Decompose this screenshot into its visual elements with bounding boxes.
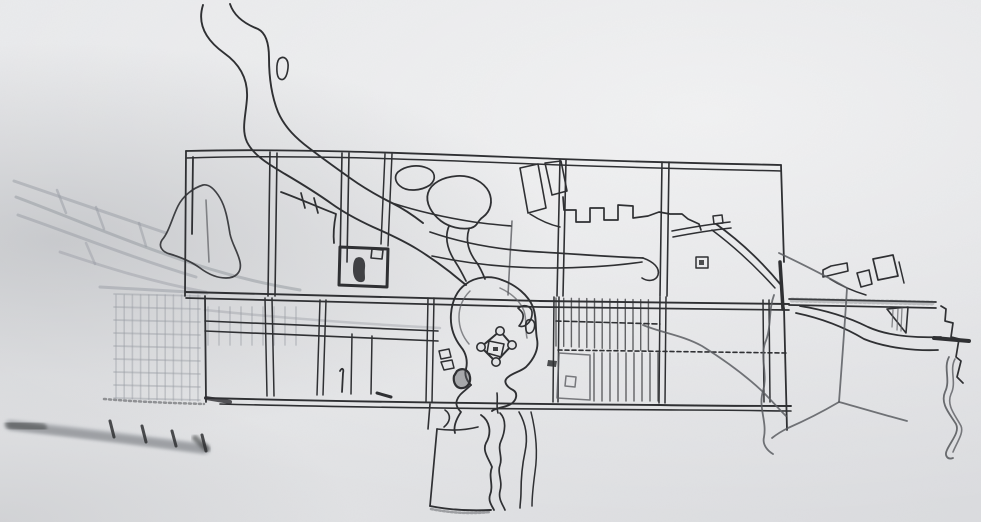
- fort-bastion-north: [496, 327, 504, 335]
- fort-bastion-south: [492, 358, 500, 366]
- paper-background: Hand-drawn pencil and ink sketch map of …: [0, 0, 981, 522]
- dark-building-mark: [547, 360, 557, 367]
- fort-center-keep: [493, 347, 498, 351]
- city-plan-svg: [0, 0, 981, 522]
- scale-bar-left-block: [10, 424, 42, 428]
- grid-left-edge-lower: [205, 296, 206, 402]
- ne-small-building-dot: [699, 260, 704, 265]
- citadel-west-lobe: [454, 369, 470, 388]
- citadel-south-neck: [497, 393, 498, 413]
- fort-bastion-east: [508, 341, 516, 349]
- fort-bastion-west: [477, 343, 485, 351]
